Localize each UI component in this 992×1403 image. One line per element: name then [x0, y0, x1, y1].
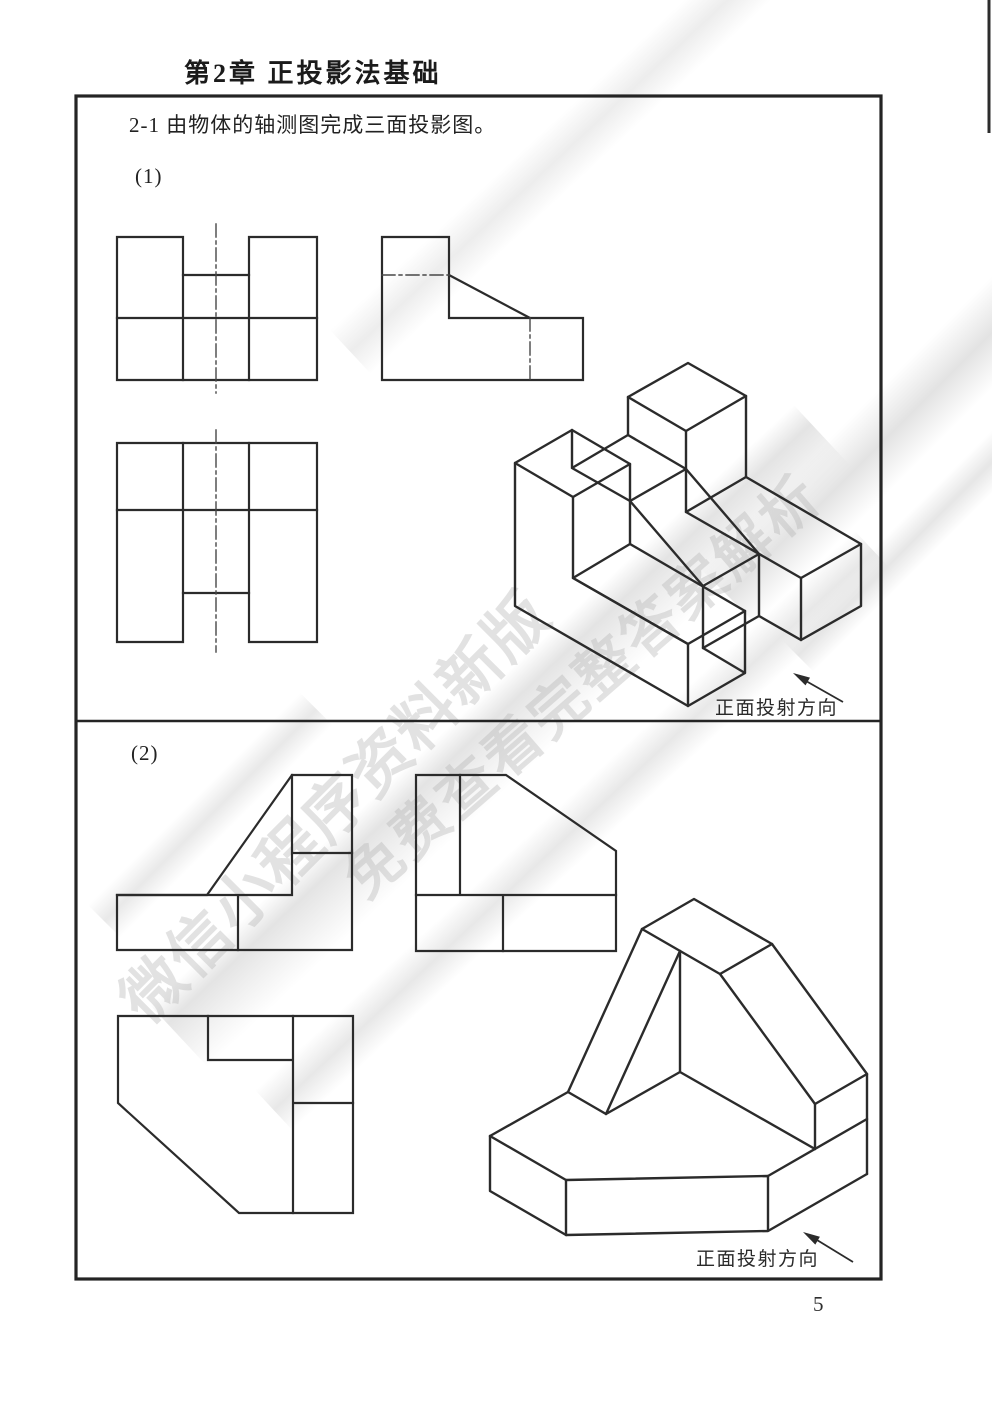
top-view-1 [117, 430, 317, 652]
page-number: 5 [813, 1292, 824, 1317]
side-view-1 [382, 237, 583, 380]
projection-direction-label-2: 正面投射方向 [696, 1244, 819, 1271]
front-view-2 [117, 775, 352, 950]
drawings-canvas [0, 0, 992, 1403]
section-2-label: (2) [131, 741, 159, 766]
axonometric-drawing-1 [515, 363, 861, 706]
section-1-label: (1) [135, 164, 163, 189]
side-view-2 [416, 775, 616, 951]
textbook-page: 微信小程序资料新版 免费查看完整答案解析 [0, 0, 992, 1403]
exercise-border-box [76, 96, 881, 1279]
exercise-title: 2-1 由物体的轴测图完成三面投影图。 [129, 109, 496, 139]
projection-direction-label-1: 正面投射方向 [715, 693, 838, 720]
top-view-2 [118, 1016, 353, 1213]
front-view-1 [117, 224, 317, 393]
chapter-title: 第2章 正投影法基础 [184, 53, 442, 90]
axonometric-drawing-2 [490, 899, 867, 1235]
